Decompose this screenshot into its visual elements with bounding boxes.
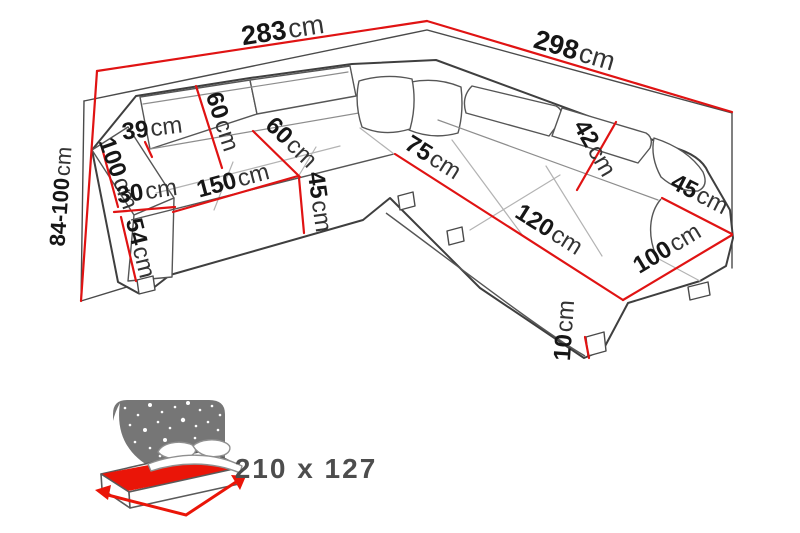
corner-pillow-left bbox=[357, 76, 414, 132]
dim-label-298: 298cm bbox=[530, 24, 618, 76]
dim-label-283: 283cm bbox=[239, 9, 326, 51]
sofa-foot bbox=[447, 227, 464, 245]
dim-label-84-100: 84-100cm bbox=[45, 146, 77, 247]
sleeping-size-label: 210 x 127 bbox=[235, 453, 378, 484]
corner-pillow-right bbox=[408, 80, 462, 136]
sofa-foot bbox=[398, 192, 415, 210]
sofa-drawing bbox=[92, 60, 733, 358]
sleeping-function-icon: 210 x 127 bbox=[95, 400, 377, 515]
dim-label-10: 10cm bbox=[549, 299, 580, 361]
sofa-dimension-diagram: 283cm 298cm 84-100cm 39cm 60cm 100cm 30c… bbox=[0, 0, 800, 533]
diagram-canvas: 283cm 298cm 84-100cm 39cm 60cm 100cm 30c… bbox=[0, 0, 800, 533]
